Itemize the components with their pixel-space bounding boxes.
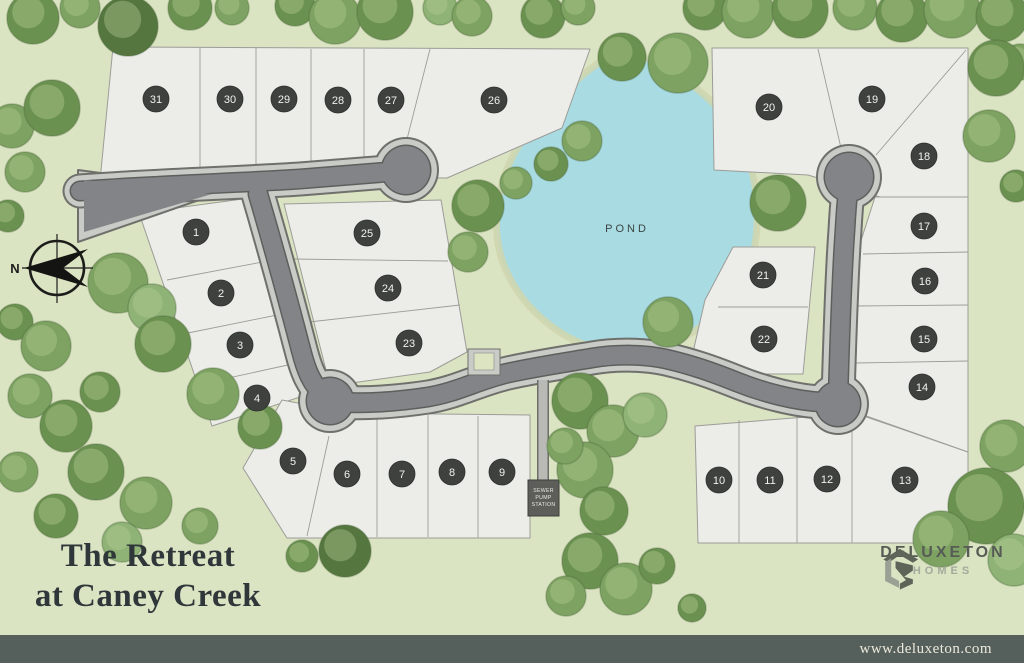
- sewer-label-line3: STATION: [532, 502, 556, 508]
- lot-number: 2: [218, 288, 224, 300]
- tree: [0, 200, 24, 232]
- tree: [24, 80, 80, 136]
- sewer-label-line1: SEWER: [533, 488, 554, 494]
- lot-number: 4: [254, 393, 260, 405]
- lot-marker-15[interactable]: 15: [911, 326, 937, 352]
- tree: [309, 0, 361, 44]
- lot-number: 17: [918, 221, 930, 233]
- lot-marker-1[interactable]: 1: [183, 219, 209, 245]
- lot-number: 21: [757, 270, 769, 282]
- tree: [648, 33, 708, 93]
- tree: [562, 121, 602, 161]
- tree: [1000, 170, 1024, 202]
- lot-marker-29[interactable]: 29: [271, 86, 297, 112]
- lot-marker-21[interactable]: 21: [750, 262, 776, 288]
- lot-marker-12[interactable]: 12: [814, 466, 840, 492]
- road-notch: [468, 349, 500, 375]
- site-title-line2: at Caney Creek: [18, 576, 278, 616]
- lot-number: 25: [361, 228, 373, 240]
- tree: [547, 428, 583, 464]
- tree: [21, 321, 71, 371]
- tree: [80, 372, 120, 412]
- lot-marker-2[interactable]: 2: [208, 280, 234, 306]
- lot-marker-8[interactable]: 8: [439, 459, 465, 485]
- lot-number: 29: [278, 94, 290, 106]
- lot-marker-7[interactable]: 7: [389, 461, 415, 487]
- lot-marker-23[interactable]: 23: [396, 330, 422, 356]
- tree: [40, 400, 92, 452]
- tree: [34, 494, 78, 538]
- lot-marker-10[interactable]: 10: [706, 467, 732, 493]
- tree: [963, 110, 1015, 162]
- lot-number: 10: [713, 475, 725, 487]
- lot-number: 12: [821, 474, 833, 486]
- lot-marker-17[interactable]: 17: [911, 213, 937, 239]
- site-title-line1: The Retreat: [18, 536, 278, 576]
- tree: [5, 152, 45, 192]
- tree: [448, 232, 488, 272]
- tree: [623, 393, 667, 437]
- lot-marker-18[interactable]: 18: [911, 143, 937, 169]
- lot-number: 11: [764, 475, 775, 487]
- lot-number: 22: [758, 334, 770, 346]
- tree: [639, 548, 675, 584]
- lot-number: 16: [919, 276, 931, 288]
- tree: [98, 0, 158, 56]
- north-label: N: [10, 261, 19, 276]
- tree: [7, 0, 59, 44]
- lot-marker-11[interactable]: 11: [757, 467, 783, 493]
- site-title: The Retreat at Caney Creek: [18, 536, 278, 616]
- lot-marker-5[interactable]: 5: [280, 448, 306, 474]
- lot-number: 9: [499, 467, 505, 479]
- tree: [452, 0, 492, 36]
- tree: [534, 147, 568, 181]
- tree: [643, 297, 693, 347]
- lot-marker-4[interactable]: 4: [244, 385, 270, 411]
- lot-marker-28[interactable]: 28: [325, 87, 351, 113]
- bottom-bar: www.deluxeton.com: [0, 635, 1024, 663]
- lot-number: 24: [382, 283, 394, 295]
- tree: [238, 405, 282, 449]
- lot-number: 26: [488, 95, 500, 107]
- lot-number: 7: [399, 469, 405, 481]
- lot-number: 13: [899, 475, 911, 487]
- lot-number: 18: [918, 151, 930, 163]
- lot-number: 23: [403, 338, 415, 350]
- lot-marker-13[interactable]: 13: [892, 467, 918, 493]
- lot-number: 20: [763, 102, 775, 114]
- lot-number: 8: [449, 467, 455, 479]
- lot-marker-22[interactable]: 22: [751, 326, 777, 352]
- lot-number: 3: [237, 340, 243, 352]
- lot-marker-24[interactable]: 24: [375, 275, 401, 301]
- tree: [580, 487, 628, 535]
- tree: [500, 167, 532, 199]
- lot-marker-9[interactable]: 9: [489, 459, 515, 485]
- website-url[interactable]: www.deluxeton.com: [860, 635, 993, 663]
- tree: [452, 180, 504, 232]
- tree: [120, 477, 172, 529]
- lot-marker-31[interactable]: 31: [143, 86, 169, 112]
- tree: [678, 594, 706, 622]
- block-lots-14-17: [853, 197, 968, 452]
- lot-marker-14[interactable]: 14: [909, 374, 935, 400]
- lot-number: 27: [385, 95, 397, 107]
- lot-number: 15: [918, 334, 930, 346]
- lot-marker-19[interactable]: 19: [859, 86, 885, 112]
- lot-number: 28: [332, 95, 344, 107]
- lot-marker-16[interactable]: 16: [912, 268, 938, 294]
- lot-marker-20[interactable]: 20: [756, 94, 782, 120]
- tree: [0, 452, 38, 492]
- brand-block: DELUXETON HOMES: [873, 544, 1013, 577]
- lot-number: 31: [150, 94, 162, 106]
- tree: [750, 175, 806, 231]
- tree: [521, 0, 565, 38]
- sewer-label-line2: PUMP: [535, 495, 551, 501]
- lot-marker-26[interactable]: 26: [481, 87, 507, 113]
- site-plan: POND: [0, 0, 1024, 663]
- lot-number: 5: [290, 456, 296, 468]
- tree: [319, 525, 371, 577]
- lot-marker-25[interactable]: 25: [354, 220, 380, 246]
- tree: [286, 540, 318, 572]
- tree: [546, 576, 586, 616]
- lot-number: 30: [224, 94, 236, 106]
- lot-marker-3[interactable]: 3: [227, 332, 253, 358]
- tree: [135, 316, 191, 372]
- lot-number: 19: [866, 94, 878, 106]
- tree: [68, 444, 124, 500]
- lot-marker-6[interactable]: 6: [334, 461, 360, 487]
- tree: [598, 33, 646, 81]
- lot-marker-27[interactable]: 27: [378, 87, 404, 113]
- tree: [968, 40, 1024, 96]
- pond-label: POND: [605, 223, 649, 235]
- lot-number: 6: [344, 469, 350, 481]
- lot-number: 1: [193, 227, 199, 239]
- deluxeton-logo-icon: [873, 544, 925, 592]
- tree: [187, 368, 239, 420]
- lot-marker-30[interactable]: 30: [217, 86, 243, 112]
- tree: [980, 420, 1024, 472]
- lot-number: 14: [916, 382, 928, 394]
